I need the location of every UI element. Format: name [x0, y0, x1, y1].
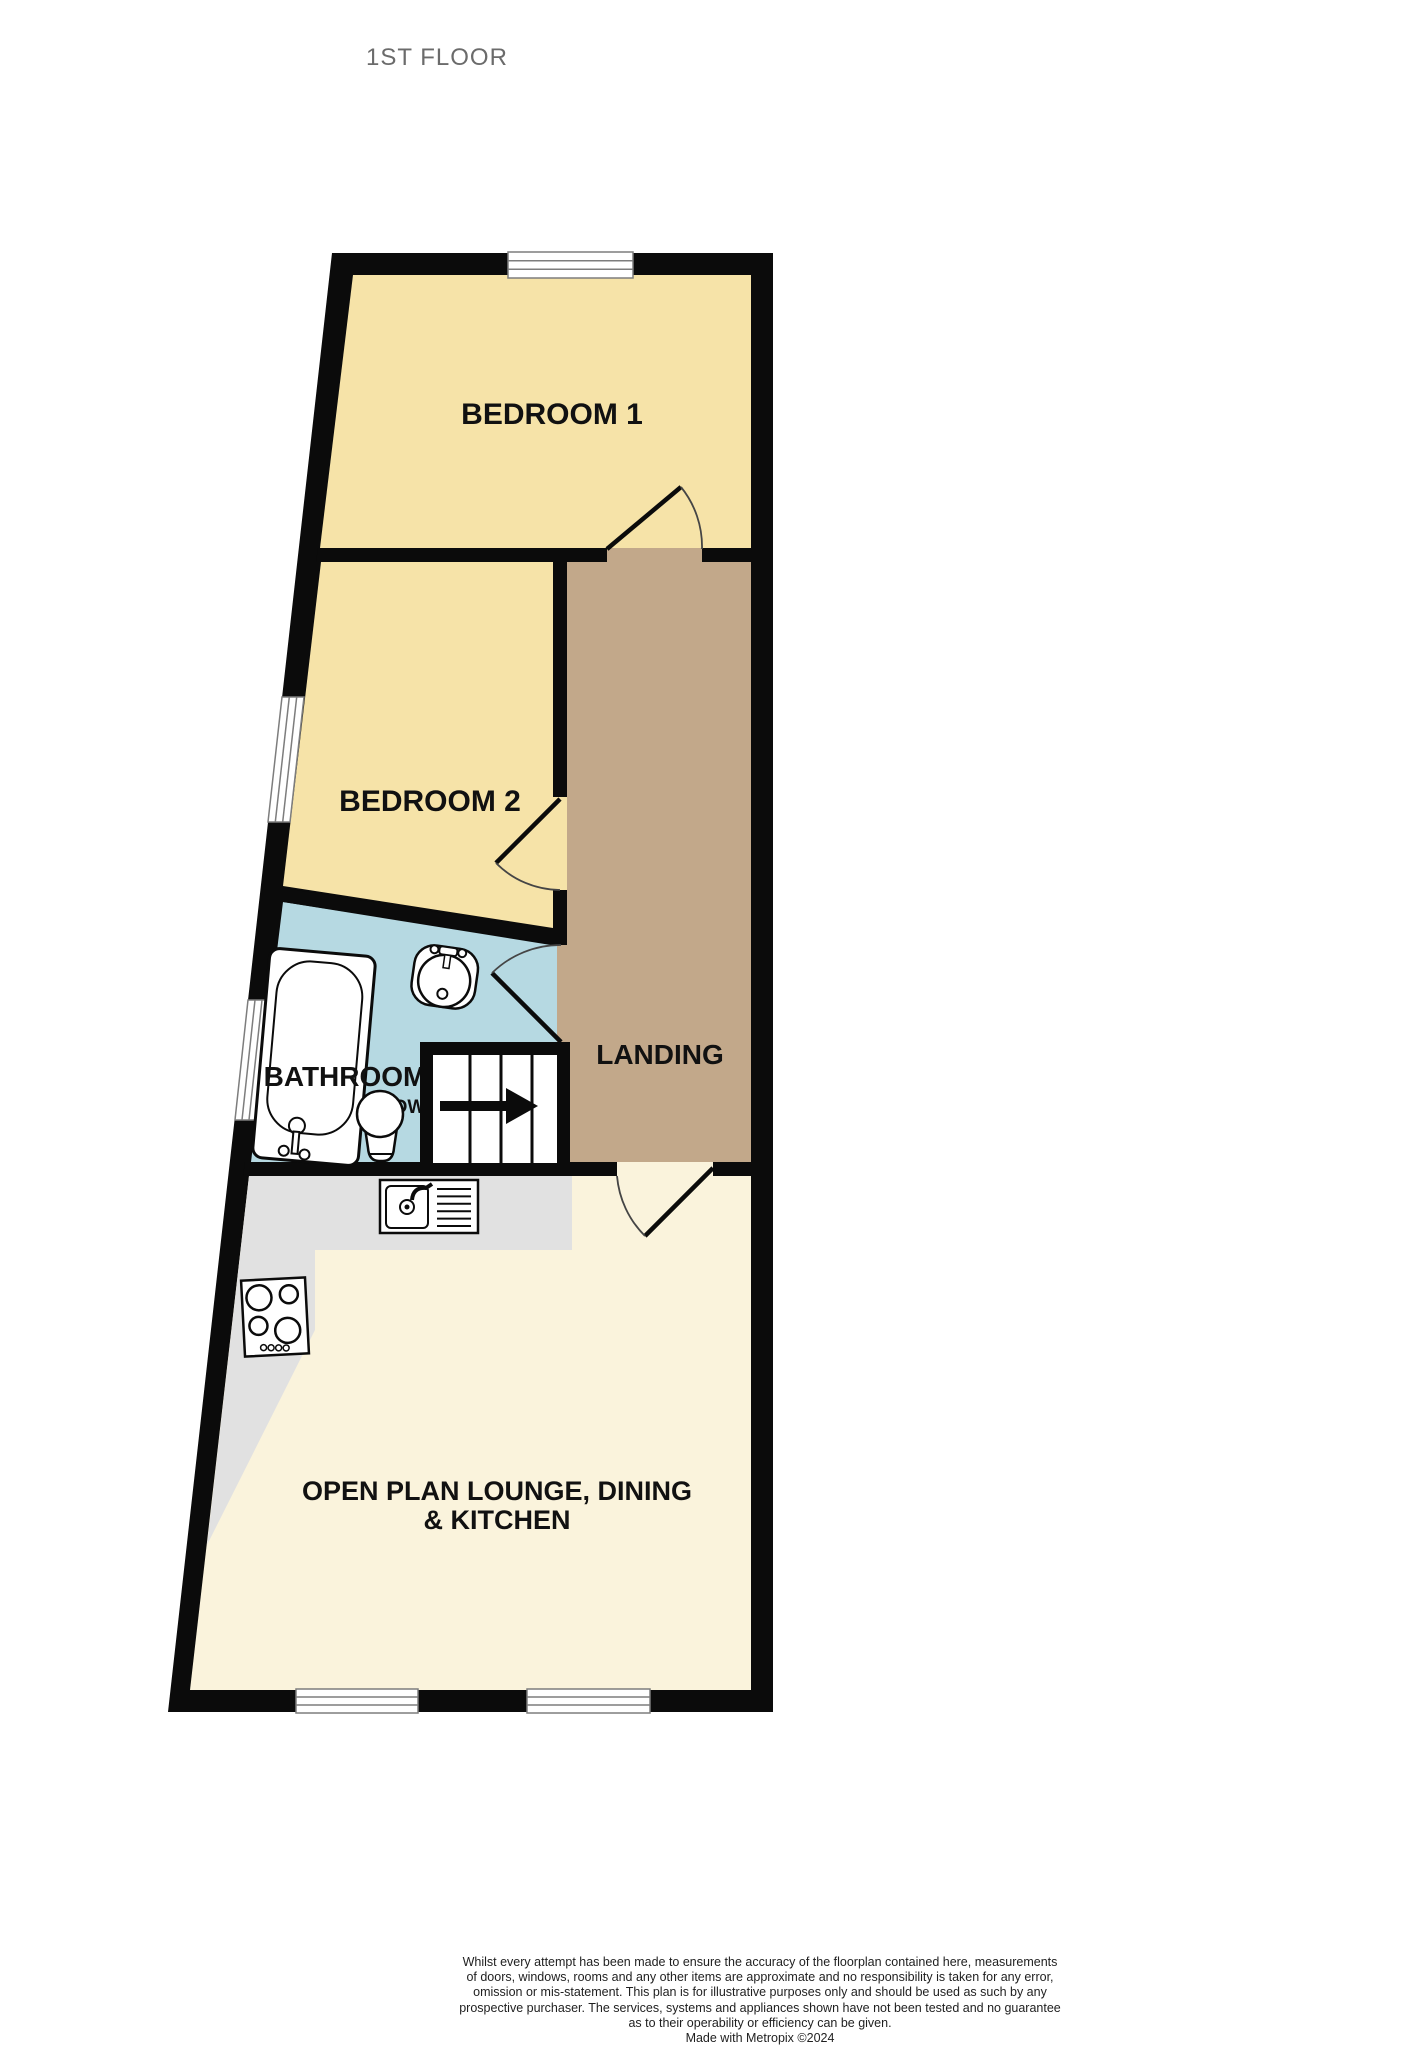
- floorplan-drawing: BATHROOM DOWN: [0, 0, 1405, 2048]
- doorway-bedroom2: [553, 797, 567, 890]
- wall-bedroom1-divider-left: [316, 548, 607, 562]
- landing-floor: [557, 562, 751, 1162]
- metropix-credit: Made with Metropix ©2024: [430, 2031, 1090, 2046]
- washbasin-icon: [409, 943, 481, 1011]
- floorplan-page: 1ST FLOOR: [0, 0, 1405, 2048]
- doorway-landing-stairs: [617, 1162, 713, 1176]
- kitchen-sink-icon: [380, 1180, 478, 1233]
- disclaimer-line: prospective purchaser. The services, sys…: [430, 2001, 1090, 2016]
- window-icon: [527, 1689, 650, 1713]
- bathtub-icon: [252, 948, 376, 1166]
- disclaimer-line: as to their operability or efficiency ca…: [430, 2016, 1090, 2031]
- disclaimer-line: Whilst every attempt has been made to en…: [430, 1955, 1090, 1970]
- bathroom-label: BATHROOM: [264, 1061, 427, 1092]
- window-icon: [508, 252, 633, 278]
- lounge-label-line1: OPEN PLAN LOUNGE, DINING: [302, 1476, 692, 1506]
- bedroom2-floor: [283, 562, 553, 928]
- lounge-label-line2: & KITCHEN: [424, 1505, 571, 1535]
- bedroom2-label: BEDROOM 2: [339, 785, 521, 818]
- wall-bedroom2-landing-upper: [553, 562, 567, 797]
- hob-icon: [241, 1277, 309, 1356]
- wall-upper-lower-right: [713, 1162, 751, 1176]
- wall-bedroom1-divider-right: [702, 548, 751, 562]
- landing-label: LANDING: [596, 1039, 724, 1070]
- wall-bedroom2-landing-lower: [553, 890, 567, 945]
- disclaimer-line: of doors, windows, rooms and any other i…: [430, 1970, 1090, 1985]
- doorway-bedroom1: [607, 548, 702, 562]
- bedroom1-label: BEDROOM 1: [461, 398, 643, 431]
- disclaimer-footer: Whilst every attempt has been made to en…: [430, 1955, 1090, 2046]
- disclaimer-line: omission or mis-statement. This plan is …: [430, 1985, 1090, 2000]
- staircase-icon: [420, 1042, 570, 1176]
- window-icon: [296, 1689, 418, 1713]
